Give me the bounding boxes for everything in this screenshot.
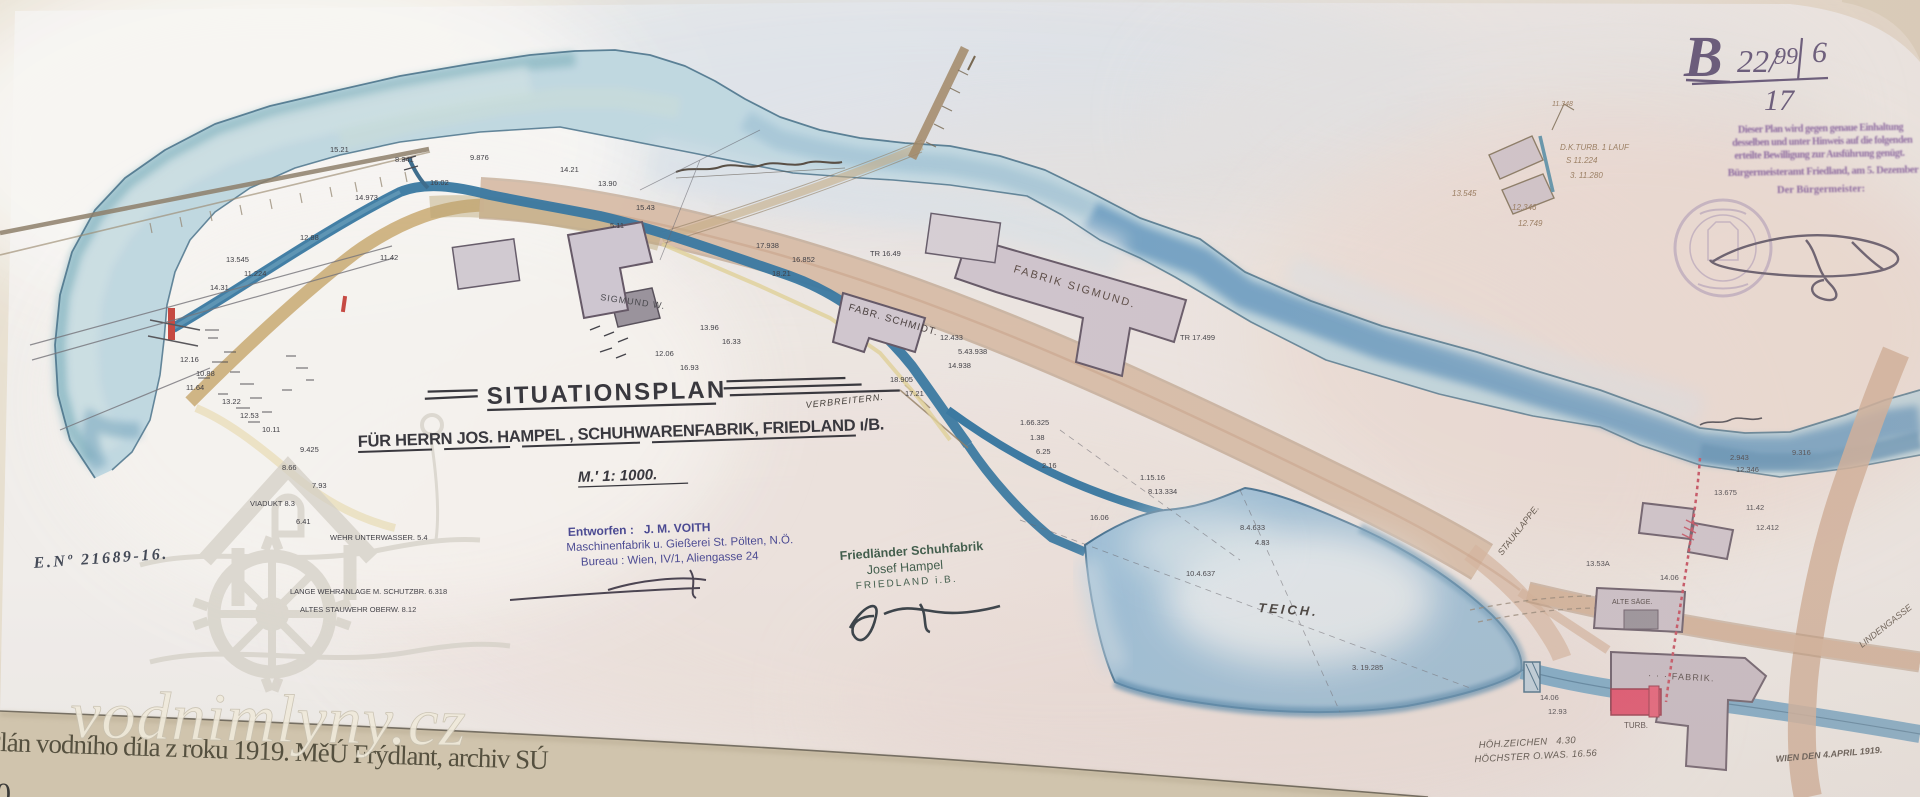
- svg-text:0: 0: [0, 777, 11, 797]
- svg-text:vodnimlyny.cz: vodnimlyny.cz: [70, 676, 468, 760]
